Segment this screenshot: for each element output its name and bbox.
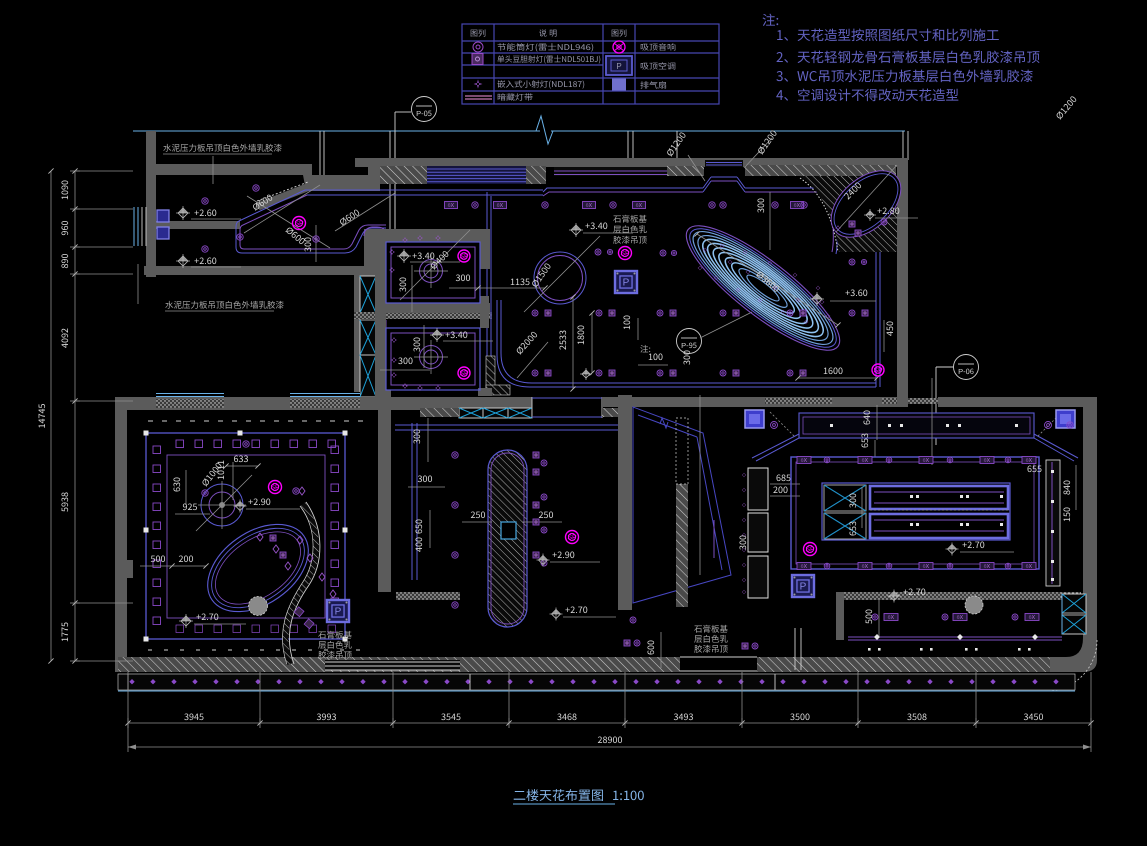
svg-text:400: 400 (412, 537, 425, 552)
svg-text:◊X: ◊X (957, 613, 964, 621)
svg-text:300: 300 (754, 198, 767, 213)
svg-text:3945: 3945 (184, 710, 204, 723)
svg-text:+2.70: +2.70 (962, 538, 985, 551)
svg-text:P-95: P-95 (681, 340, 697, 351)
svg-text:水泥压力板吊顶白色外墙乳胶漆: 水泥压力板吊顶白色外墙乳胶漆 (163, 142, 283, 154)
svg-text:300: 300 (410, 429, 423, 444)
svg-text:4092: 4092 (58, 328, 71, 348)
svg-text:◊X: ◊X (448, 201, 455, 209)
svg-text:300: 300 (398, 354, 413, 367)
svg-text:2、天花轻钢龙骨石膏板基层白色乳胶漆吊顶: 2、天花轻钢龙骨石膏板基层白色乳胶漆吊顶 (776, 46, 1040, 66)
svg-text:300: 300 (456, 271, 471, 284)
svg-text:P: P (616, 61, 621, 72)
svg-text:◊X: ◊X (984, 456, 991, 464)
svg-text:胶漆吊顶: 胶漆吊顶 (613, 234, 648, 246)
svg-text:300: 300 (846, 493, 859, 508)
svg-text:◊X: ◊X (1026, 562, 1033, 570)
svg-text:+3.40: +3.40 (445, 328, 468, 341)
svg-text:+2.70: +2.70 (903, 585, 926, 598)
svg-text:P: P (335, 603, 342, 618)
svg-text:3508: 3508 (907, 710, 927, 723)
svg-text:3493: 3493 (674, 710, 694, 723)
svg-text:1090: 1090 (58, 180, 71, 200)
svg-text:图列: 图列 (611, 28, 627, 39)
svg-text:嵌入式小射灯(NDL187): 嵌入式小射灯(NDL187) (497, 79, 585, 90)
svg-text:◊X: ◊X (586, 201, 593, 209)
svg-text:◊X: ◊X (497, 201, 504, 209)
svg-text:胶漆吊顶: 胶漆吊顶 (318, 649, 353, 661)
svg-text:+3.40: +3.40 (585, 219, 608, 232)
svg-text:注:: 注: (640, 343, 651, 355)
svg-text:P-06: P-06 (958, 366, 974, 377)
svg-text:653: 653 (858, 433, 871, 448)
svg-text:◊X: ◊X (794, 201, 801, 209)
svg-text:500: 500 (862, 609, 875, 624)
svg-text:200: 200 (773, 483, 788, 496)
svg-text:+3.60: +3.60 (845, 286, 868, 299)
svg-text:1135: 1135 (510, 275, 530, 288)
svg-text:300: 300 (301, 237, 314, 252)
svg-text:450: 450 (883, 321, 896, 336)
svg-text:吸顶空调: 吸顶空调 (640, 61, 676, 72)
svg-text:640: 640 (860, 410, 873, 425)
svg-text:3500: 3500 (790, 710, 810, 723)
svg-text:+2.90: +2.90 (552, 548, 575, 561)
svg-text:SP: SP (567, 533, 577, 543)
svg-text:14745: 14745 (35, 404, 48, 429)
svg-text:650: 650 (412, 519, 425, 534)
svg-text:SP: SP (294, 219, 304, 229)
svg-text:2533: 2533 (556, 330, 569, 350)
svg-text:925: 925 (183, 500, 198, 513)
svg-text:图列: 图列 (470, 28, 486, 39)
svg-text:653: 653 (846, 521, 859, 536)
svg-text:暗藏灯带: 暗藏灯带 (497, 92, 533, 103)
svg-text:3450: 3450 (1024, 710, 1044, 723)
svg-text:3468: 3468 (557, 710, 577, 723)
svg-text:+2.80: +2.80 (877, 204, 900, 217)
svg-text:300: 300 (410, 337, 423, 352)
svg-text:4、空调设计不得改动天花造型: 4、空调设计不得改动天花造型 (776, 84, 959, 104)
svg-text:3545: 3545 (441, 710, 461, 723)
svg-text:◊X: ◊X (636, 201, 643, 209)
svg-text:◊X: ◊X (984, 562, 991, 570)
svg-text:◊X: ◊X (888, 613, 895, 621)
svg-text:P: P (800, 578, 807, 593)
svg-text:SP: SP (459, 369, 469, 379)
svg-text:890: 890 (58, 254, 71, 269)
svg-text:水泥压力板吊顶白色外墙乳胶漆: 水泥压力板吊顶白色外墙乳胶漆 (165, 299, 285, 311)
svg-text:+2.60: +2.60 (194, 254, 217, 267)
svg-text:250: 250 (539, 508, 554, 521)
svg-text:1800: 1800 (574, 325, 587, 345)
svg-text:◊X: ◊X (923, 562, 930, 570)
svg-text:◊X: ◊X (801, 456, 808, 464)
svg-text:300: 300 (396, 277, 409, 292)
svg-text:633: 633 (234, 452, 249, 465)
svg-text:28900: 28900 (598, 733, 623, 746)
svg-text:300: 300 (736, 535, 749, 550)
svg-text:+2.60: +2.60 (194, 206, 217, 219)
svg-text:SP: SP (805, 545, 815, 555)
svg-text:500: 500 (151, 552, 166, 565)
svg-text:胶漆吊顶: 胶漆吊顶 (694, 643, 729, 655)
svg-text:840: 840 (1060, 480, 1073, 495)
svg-text:排气扇: 排气扇 (640, 80, 667, 91)
svg-text:P-05: P-05 (416, 108, 432, 119)
svg-text:+2.70: +2.70 (196, 610, 219, 623)
svg-text:630: 630 (170, 477, 183, 492)
svg-text:SP: SP (873, 366, 883, 376)
svg-text:说 明: 说 明 (539, 28, 557, 39)
svg-text:5938: 5938 (58, 492, 71, 512)
svg-text:200: 200 (179, 552, 194, 565)
svg-text:SP: SP (270, 483, 280, 493)
svg-text:◊X: ◊X (862, 456, 869, 464)
svg-text:300: 300 (680, 350, 693, 365)
svg-text:单头豆胆射灯(雷士NDL501BJ): 单头豆胆射灯(雷士NDL501BJ) (497, 54, 601, 65)
svg-text:150: 150 (1060, 507, 1073, 522)
svg-text:吸顶音响: 吸顶音响 (640, 42, 676, 53)
svg-text:二楼天花布置图: 二楼天花布置图 (513, 785, 604, 804)
svg-text:+2.70: +2.70 (565, 603, 588, 616)
svg-text:1、天花造型按照图纸尺寸和比列施工: 1、天花造型按照图纸尺寸和比列施工 (776, 24, 1000, 44)
svg-text:960: 960 (58, 221, 71, 236)
svg-text:节能筒灯(雷士NDL946): 节能筒灯(雷士NDL946) (497, 42, 594, 53)
svg-text:◊X: ◊X (801, 562, 808, 570)
svg-text:◊X: ◊X (923, 456, 930, 464)
svg-text:3993: 3993 (317, 710, 337, 723)
svg-text:1600: 1600 (823, 364, 843, 377)
svg-text:+2.90: +2.90 (248, 495, 271, 508)
svg-text:P: P (623, 274, 630, 289)
svg-text:600: 600 (644, 640, 657, 655)
svg-text:◊X: ◊X (862, 562, 869, 570)
svg-text:250: 250 (471, 508, 486, 521)
svg-text:SP: SP (459, 252, 469, 262)
svg-text:1775: 1775 (58, 622, 71, 642)
svg-text:300: 300 (418, 472, 433, 485)
svg-text:◊X: ◊X (1029, 613, 1036, 621)
svg-text:100: 100 (620, 315, 633, 330)
svg-text:SP: SP (620, 249, 630, 259)
svg-text:3、WC吊顶水泥压力板基层白色外墙乳胶漆: 3、WC吊顶水泥压力板基层白色外墙乳胶漆 (776, 65, 1033, 85)
svg-text:655: 655 (1027, 462, 1042, 475)
svg-text:1:100: 1:100 (612, 785, 644, 804)
